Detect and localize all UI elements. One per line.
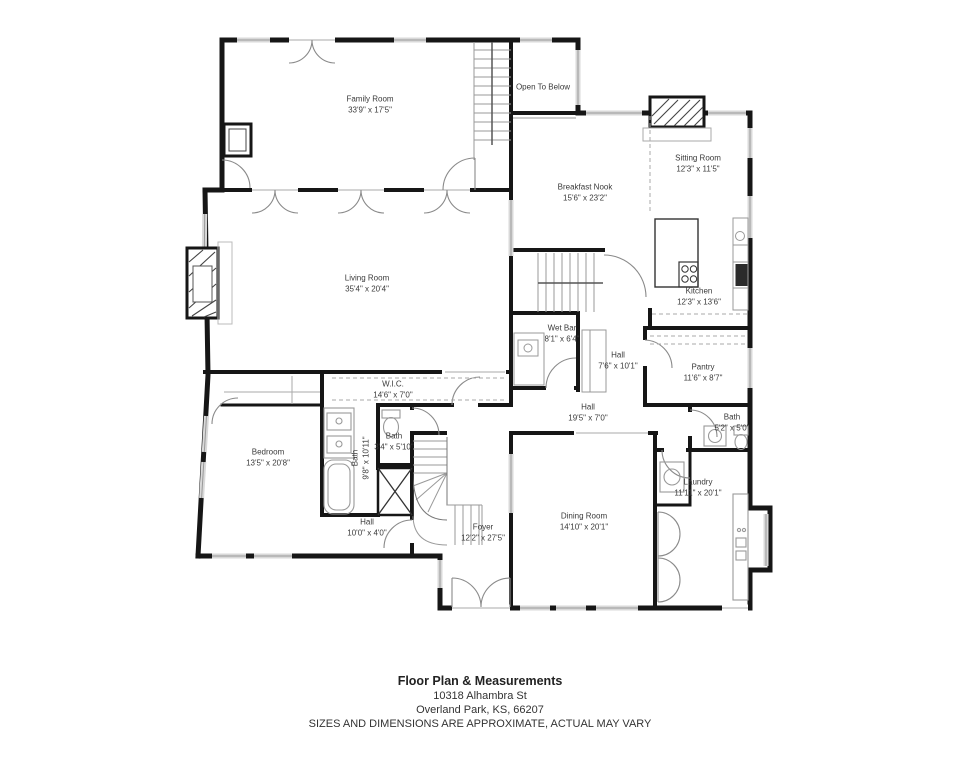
room-name: Bedroom xyxy=(246,447,290,458)
room-name: Kitchen xyxy=(677,286,721,297)
room-label-bedroom: Bedroom 13'5" x 20'8" xyxy=(246,447,290,468)
room-dims: 8'1" x 6'4" xyxy=(545,334,580,345)
room-name: Pantry xyxy=(684,362,723,373)
room-dims: 15'6" x 23'2" xyxy=(558,193,613,204)
room-dims: 13'5" x 20'8" xyxy=(246,458,290,469)
room-name: Hall xyxy=(568,402,607,413)
room-label-laundry: Laundry 11'11" x 20'1" xyxy=(674,477,721,498)
room-label-hall-lower: Hall 10'0" x 4'0" xyxy=(347,517,386,538)
room-dims: 10'0" x 4'0" xyxy=(347,528,386,539)
room-name: Bath xyxy=(715,412,750,423)
fireplace-sitting-room xyxy=(643,97,711,141)
floor-plan-drawing xyxy=(0,0,960,768)
laundry-bifold-doors xyxy=(658,512,680,602)
bedroom-closet xyxy=(224,376,320,404)
room-label-wic: W.I.C. 14'6" x 7'0" xyxy=(373,379,412,400)
room-label-dining-room: Dining Room 14'10" x 20'1" xyxy=(560,511,608,532)
staircase-center xyxy=(538,253,603,312)
room-name: Sitting Room xyxy=(675,153,721,164)
room-name: Open To Below xyxy=(516,83,570,94)
footer-address-street: 10318 Alhambra St xyxy=(0,690,960,702)
room-dims: 11'11" x 20'1" xyxy=(674,488,721,499)
room-dims: 14'6" x 7'0" xyxy=(373,390,412,401)
room-dims: 7'6" x 10'1" xyxy=(598,361,637,372)
footer-title: Floor Plan & Measurements xyxy=(0,674,960,688)
room-label-hall-middle: Hall 19'5" x 7'0" xyxy=(568,402,607,423)
room-dims: 3'4" x 5'10" xyxy=(374,442,413,453)
chimney-family-room xyxy=(224,124,251,156)
room-label-open-to-below: Open To Below xyxy=(516,83,570,94)
room-dims: 11'6" x 8'7" xyxy=(684,373,723,384)
footer-disclaimer: SIZES AND DIMENSIONS ARE APPROXIMATE, AC… xyxy=(0,718,960,730)
room-dims: 33'9" x 17'5" xyxy=(346,105,393,116)
room-name: Bath xyxy=(350,436,361,479)
kitchen-counters xyxy=(733,218,748,310)
linen-closet xyxy=(378,468,412,515)
room-name: Wet Bar xyxy=(545,323,580,334)
room-label-pantry: Pantry 11'6" x 8'7" xyxy=(684,362,723,383)
room-label-family-room: Family Room 33'9" x 17'5" xyxy=(346,94,393,115)
room-name: Breakfast Nook xyxy=(558,182,613,193)
room-name: Foyer xyxy=(461,522,505,533)
room-dims: 19'5" x 7'0" xyxy=(568,413,607,424)
kitchen-island xyxy=(655,219,698,287)
room-dims: 12'3" x 11'5" xyxy=(675,164,721,175)
wet-bar-counter xyxy=(514,333,544,385)
staircase-upper xyxy=(474,42,576,160)
room-label-wet-bar: Wet Bar 8'1" x 6'4" xyxy=(545,323,580,344)
room-dims: 9'8" x 10'11" xyxy=(361,436,372,479)
room-label-foyer: Foyer 12'2" x 27'5" xyxy=(461,522,505,543)
room-name: W.I.C. xyxy=(373,379,412,390)
room-dims: 5'2" x 5'0" xyxy=(715,423,750,434)
room-name: Dining Room xyxy=(560,511,608,522)
room-dims: 12'3" x 13'6" xyxy=(677,297,721,308)
footer-address-city: Overland Park, KS, 66207 xyxy=(0,704,960,716)
room-label-breakfast-nook: Breakfast Nook 15'6" x 23'2" xyxy=(558,182,613,203)
interior-walls-thin xyxy=(222,405,690,505)
room-name: Hall xyxy=(598,350,637,361)
room-dims: 14'10" x 20'1" xyxy=(560,522,608,533)
room-label-living-room: Living Room 35'4" x 20'4" xyxy=(345,273,389,294)
room-label-bath-primary: Bath 9'8" x 10'11" xyxy=(350,436,371,479)
fireplace-living-room xyxy=(187,242,232,324)
room-name: Living Room xyxy=(345,273,389,284)
room-dims: 35'4" x 20'4" xyxy=(345,284,389,295)
room-label-bath-secondary: Bath 3'4" x 5'10" xyxy=(374,431,413,452)
room-name: Bath xyxy=(374,431,413,442)
room-name: Family Room xyxy=(346,94,393,105)
room-name: Hall xyxy=(347,517,386,528)
room-name: Laundry xyxy=(674,477,721,488)
plan-footer: Floor Plan & Measurements 10318 Alhambra… xyxy=(0,674,960,730)
room-label-sitting-room: Sitting Room 12'3" x 11'5" xyxy=(675,153,721,174)
room-dims: 12'2" x 27'5" xyxy=(461,533,505,544)
room-label-bath-hall: Bath 5'2" x 5'0" xyxy=(715,412,750,433)
room-label-hall-upper: Hall 7'6" x 10'1" xyxy=(598,350,637,371)
floor-plan-page: Family Room 33'9" x 17'5" Open To Below … xyxy=(0,0,960,768)
room-label-kitchen: Kitchen 12'3" x 13'6" xyxy=(677,286,721,307)
